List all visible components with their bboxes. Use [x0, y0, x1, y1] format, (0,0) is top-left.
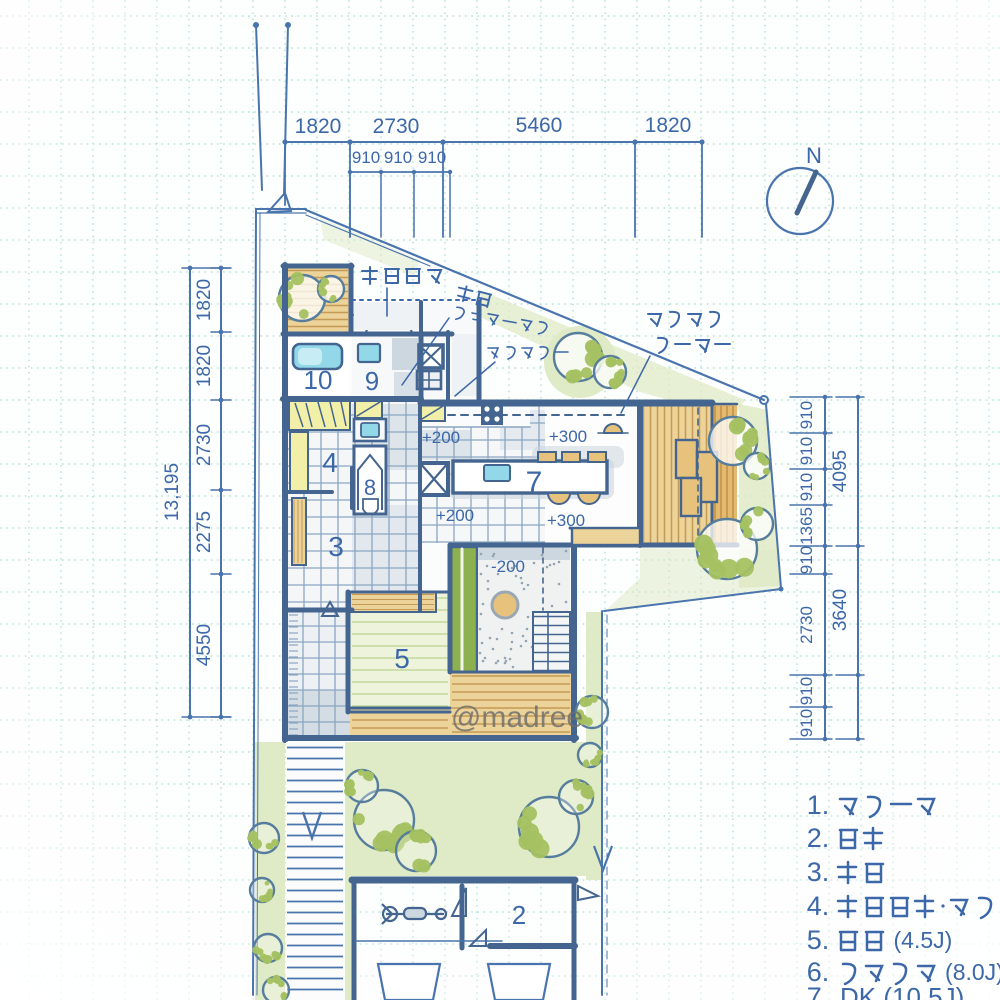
- svg-text:3: 3: [328, 531, 344, 562]
- svg-text:5.: 5.: [807, 925, 830, 955]
- svg-text:1820: 1820: [194, 345, 215, 387]
- svg-text:+200: +200: [422, 428, 460, 447]
- svg-text:5460: 5460: [516, 114, 563, 137]
- svg-text:4.: 4.: [807, 891, 830, 921]
- svg-text:1.: 1.: [807, 790, 830, 820]
- svg-text:2730: 2730: [797, 606, 816, 644]
- svg-text:N: N: [806, 143, 822, 168]
- svg-text:(4.5J): (4.5J): [894, 927, 953, 953]
- svg-text:910: 910: [797, 709, 816, 737]
- svg-text:5: 5: [394, 643, 410, 674]
- svg-text:+200: +200: [436, 506, 474, 525]
- svg-text:+300: +300: [549, 427, 587, 446]
- svg-text:2: 2: [512, 900, 526, 930]
- svg-text:1820: 1820: [295, 115, 342, 138]
- svg-text:7.: 7.: [807, 982, 830, 1000]
- svg-text:2.: 2.: [807, 823, 830, 853]
- svg-text:3.: 3.: [807, 857, 830, 887]
- svg-text:910: 910: [797, 546, 816, 574]
- svg-text:10: 10: [304, 365, 333, 395]
- svg-text:4095: 4095: [830, 450, 851, 492]
- svg-text:1365: 1365: [797, 507, 816, 545]
- svg-text:910: 910: [797, 401, 816, 429]
- svg-text:3640: 3640: [830, 589, 851, 631]
- svg-text:910: 910: [797, 437, 816, 465]
- svg-text:910: 910: [352, 148, 380, 167]
- svg-text:910: 910: [797, 473, 816, 501]
- svg-text:910: 910: [797, 677, 816, 705]
- svg-text:2730: 2730: [373, 115, 420, 138]
- svg-text:910: 910: [418, 148, 446, 167]
- svg-text:13,195: 13,195: [162, 463, 183, 521]
- svg-text:910: 910: [384, 148, 412, 167]
- svg-text:2275: 2275: [194, 511, 215, 553]
- svg-text:4: 4: [322, 447, 338, 478]
- svg-text:DK (10.5J): DK (10.5J): [840, 982, 964, 1000]
- svg-text:7: 7: [526, 466, 543, 499]
- svg-text:1820: 1820: [194, 279, 215, 321]
- svg-text:2730: 2730: [194, 424, 215, 466]
- svg-text:1820: 1820: [645, 114, 692, 137]
- svg-text:8: 8: [364, 475, 376, 500]
- svg-text:-200: -200: [491, 557, 525, 576]
- svg-text:4550: 4550: [194, 624, 215, 666]
- svg-text:@madree: @madree: [451, 701, 583, 734]
- svg-text:9: 9: [365, 366, 379, 396]
